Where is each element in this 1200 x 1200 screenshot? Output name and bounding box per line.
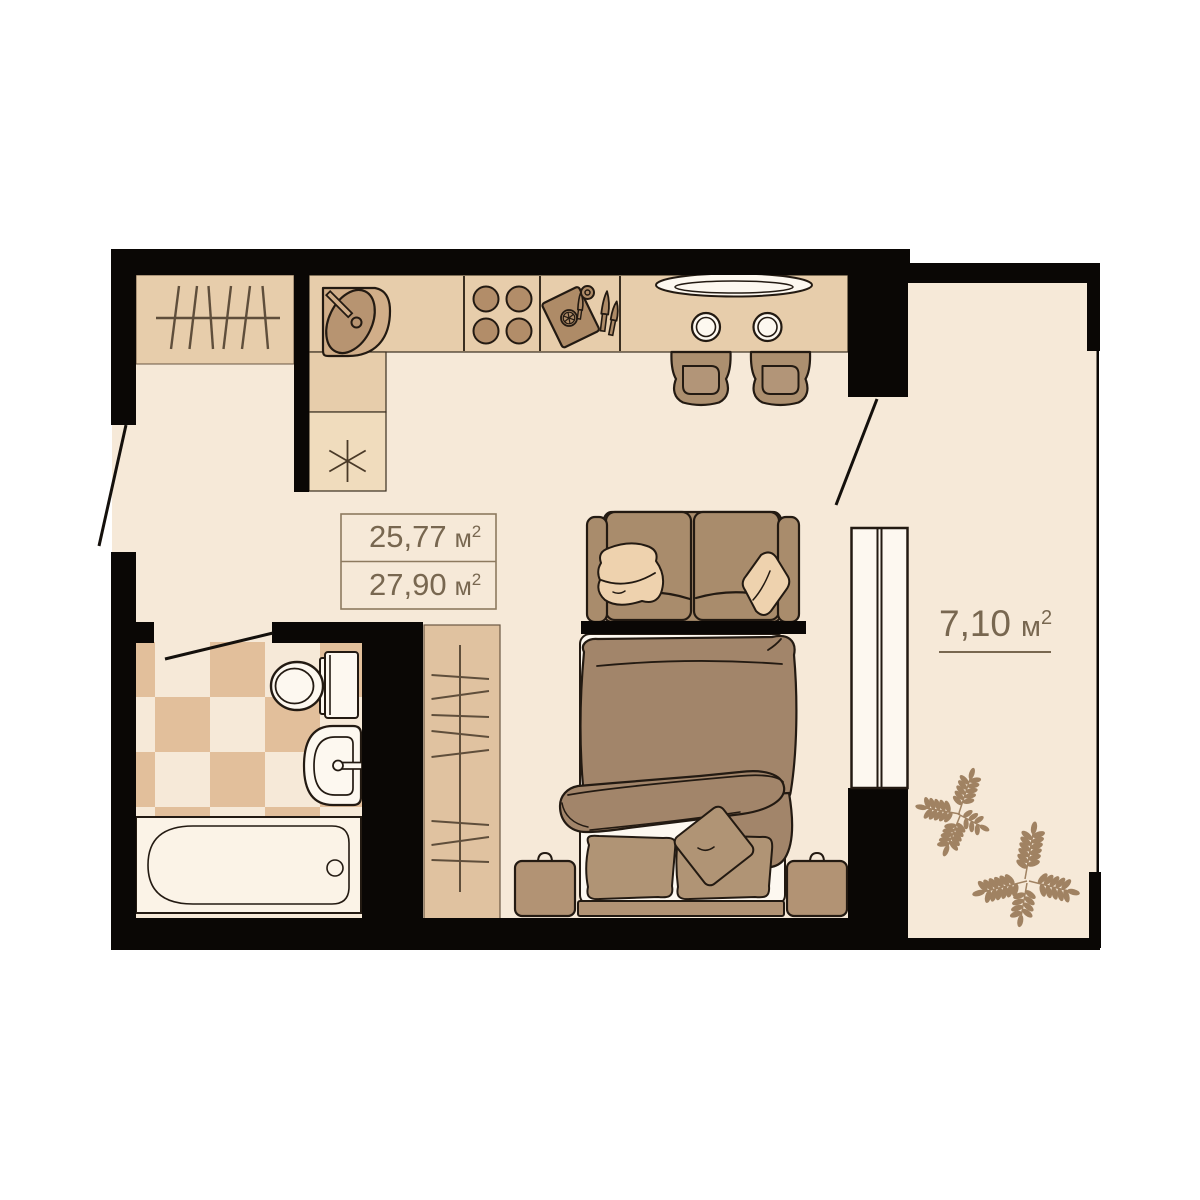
svg-text:27,90м2: 27,90м2	[369, 567, 481, 602]
svg-text:25,77м2: 25,77м2	[369, 519, 481, 554]
